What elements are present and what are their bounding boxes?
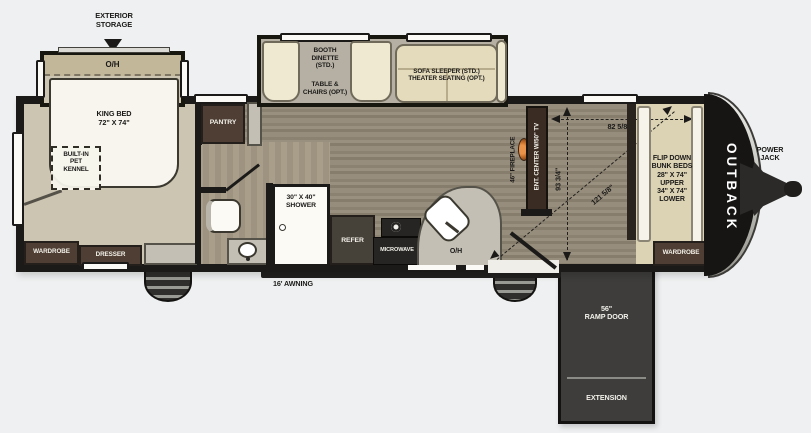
bathroom-faucet xyxy=(246,257,250,261)
sofa-armrest xyxy=(496,40,507,103)
ramp-door-extension-seam xyxy=(567,377,646,379)
sofa-label: SOFA SLEEPER (STD.) THEATER SEATING (OPT… xyxy=(396,68,497,83)
ent-center-label: ENT. CENTER W/50" TV xyxy=(533,107,540,207)
slideout-window-sofa xyxy=(406,33,492,42)
shower-drain xyxy=(279,224,286,231)
exterior-storage-label: EXTERIOR STORAGE xyxy=(72,12,156,30)
toilet xyxy=(206,199,241,233)
fireplace-label: 46" FIREPLACE xyxy=(509,124,516,196)
bedroom-slide-topper xyxy=(58,47,170,53)
brand-logo: OUTBACK xyxy=(711,127,739,247)
bedroom-wardrobe-label: WARDROBE xyxy=(24,248,79,255)
dinette-option-label: TABLE & CHAIRS (OPT.) xyxy=(295,81,355,96)
measure-depth-label: 93 3/4" xyxy=(555,149,564,209)
microwave-label: MICROWAVE xyxy=(373,247,421,254)
power-jack xyxy=(740,162,788,216)
window-top-right xyxy=(582,94,638,104)
bedroom-slide-window-right xyxy=(180,60,189,98)
awning-label: 16' AWNING xyxy=(260,280,326,288)
pet-kennel-label: BUILT-IN PET KENNEL xyxy=(51,151,101,173)
cooktop-burner-icon xyxy=(391,222,401,232)
pantry-label: PANTRY xyxy=(201,119,245,127)
refrigerator-label: REFER xyxy=(330,237,375,245)
measure-line-depth xyxy=(567,112,568,260)
shower-label: 30" X 40" SHOWER xyxy=(273,194,329,210)
king-bed-label: KING BED 72" X 74" xyxy=(49,110,179,127)
floorplan-canvas: 56" RAMP DOOR EXTENSION 16' AWNING EXTER… xyxy=(0,0,811,433)
dinette-seat-right xyxy=(350,41,392,102)
ramp-extension-label: EXTENSION xyxy=(560,394,653,402)
measure-depth-arrow-bottom xyxy=(563,252,571,261)
rear-wall-window xyxy=(12,132,24,226)
bedroom-cabinet xyxy=(144,243,197,265)
window-above-pantry xyxy=(194,94,248,104)
garage-wardrobe-label: WARDROBE xyxy=(653,249,709,256)
bedroom-bath-wall xyxy=(195,145,201,264)
power-jack-knob xyxy=(784,181,802,197)
bathroom-sink xyxy=(238,242,257,258)
power-jack-label: POWER JACK xyxy=(746,146,794,163)
garage-wall xyxy=(627,104,636,240)
measure-line-width xyxy=(556,119,688,120)
cabinet-by-pantry xyxy=(247,102,262,146)
bedroom-slide-window-left xyxy=(36,60,45,98)
bathroom-top-wall xyxy=(201,187,226,193)
measure-width-arrow-left xyxy=(551,115,560,123)
measure-depth-arrow-top xyxy=(563,107,571,116)
ramp-door-label: 56" RAMP DOOR xyxy=(560,305,653,322)
kitchen-overhead-label: O/H xyxy=(440,248,472,256)
bedroom-overhead-label: O/H xyxy=(44,60,181,69)
dresser-label: DRESSER xyxy=(79,251,142,258)
window-below-dresser xyxy=(82,262,129,271)
ent-center-base xyxy=(521,209,552,216)
cooktop xyxy=(381,218,421,237)
dinette-label: BOOTH DINETTE (STD.) xyxy=(299,47,351,70)
bunk-beds-label: FLIP DOWN BUNK BEDS 28" X 74" UPPER 34" … xyxy=(641,155,703,205)
